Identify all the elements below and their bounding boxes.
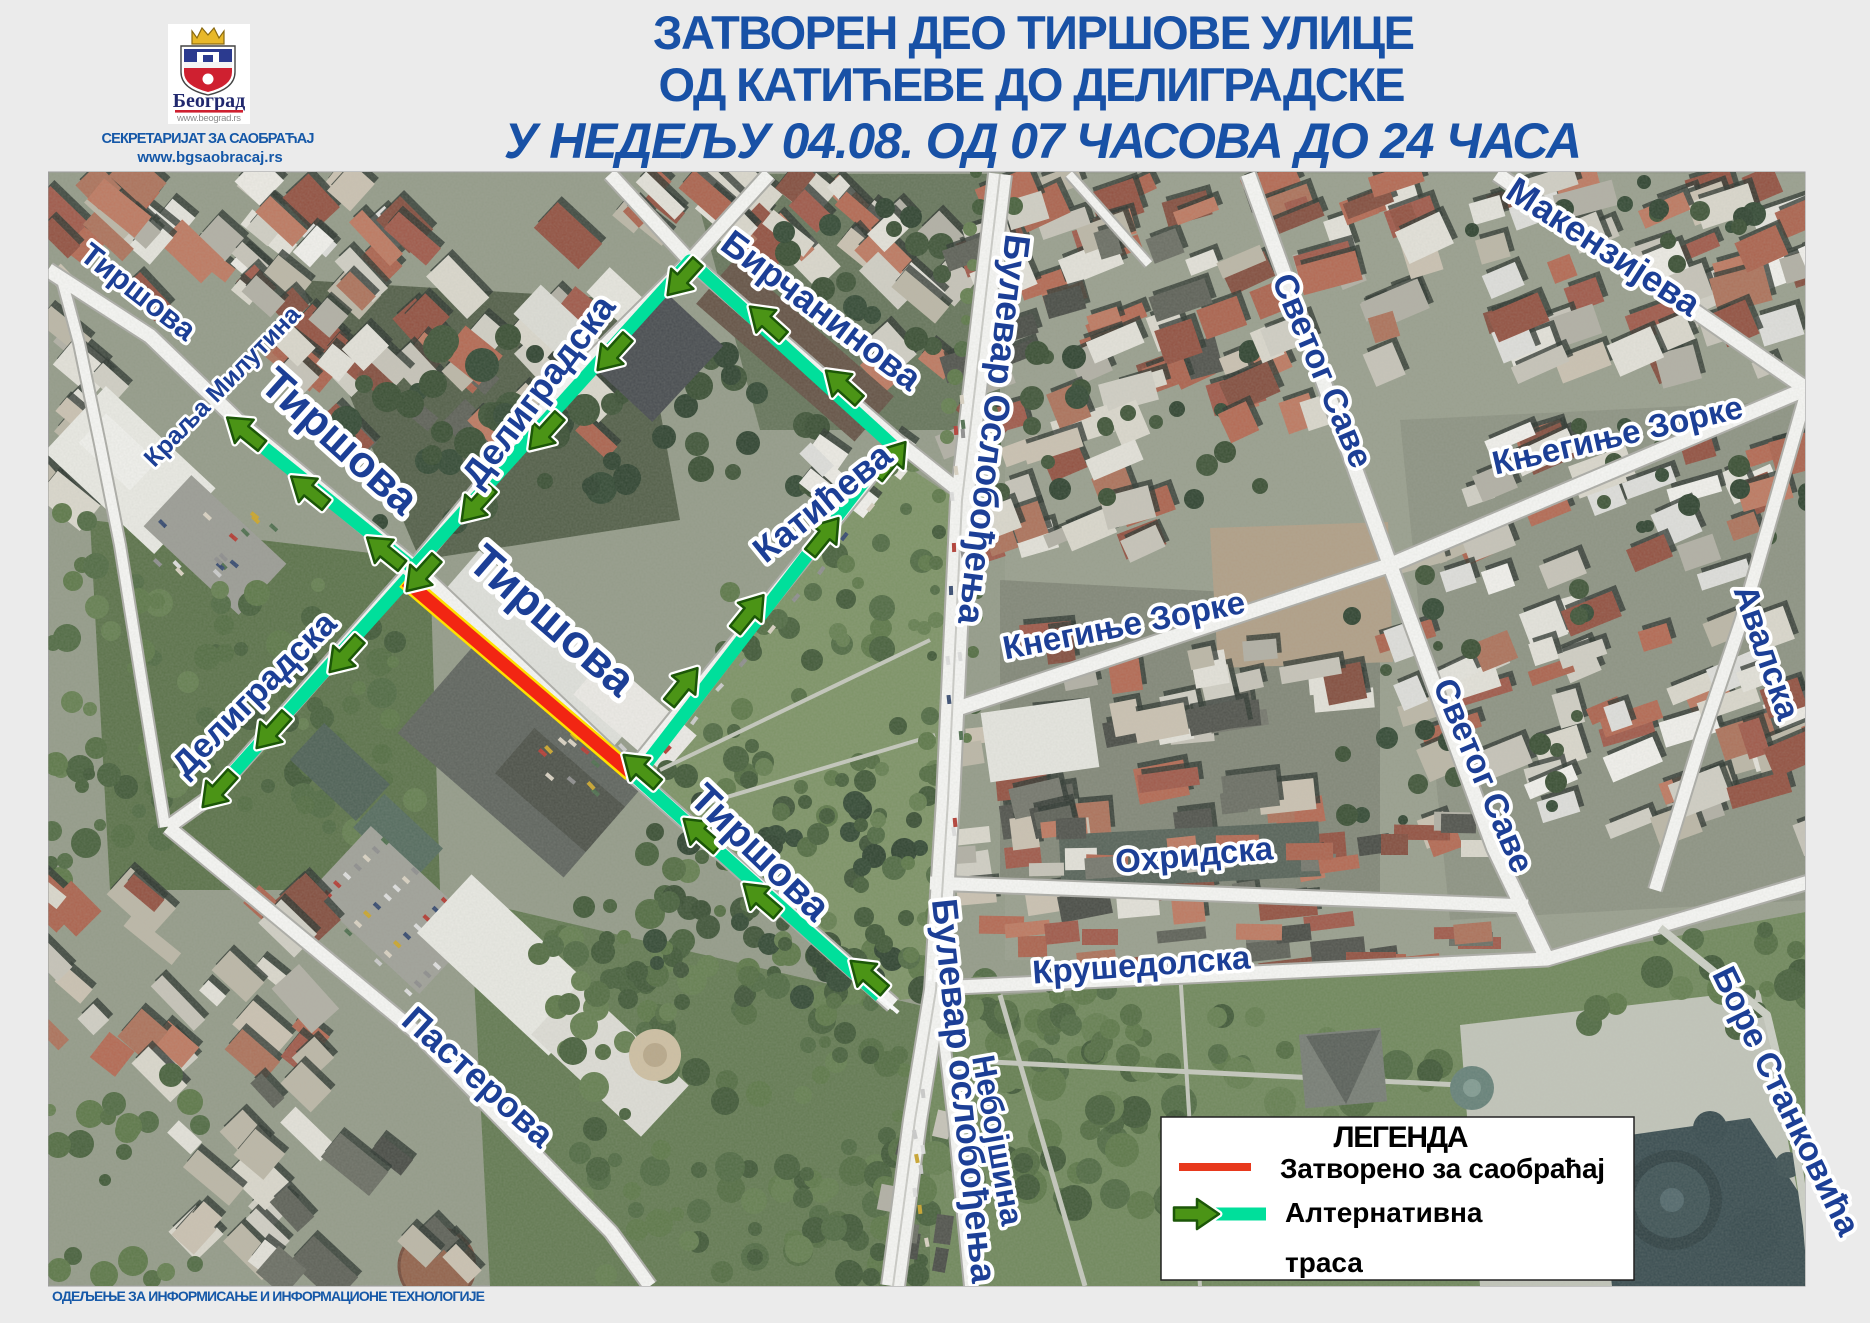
svg-text:www.beograd.rs: www.beograd.rs [176, 113, 241, 124]
svg-text:www.bgsaobracaj.rs: www.bgsaobracaj.rs [136, 149, 282, 166]
svg-text:Алтернативна: Алтернативна [1285, 1197, 1483, 1228]
svg-text:ЛЕГЕНДА: ЛЕГЕНДА [1334, 1121, 1469, 1154]
svg-text:Београд: Београд [173, 90, 245, 112]
svg-text:ОД КАТИЋЕВЕ ДО ДЕЛИГРАДСКЕ: ОД КАТИЋЕВЕ ДО ДЕЛИГРАДСКЕ [659, 58, 1406, 111]
svg-text:Затворено за саобраћај: Затворено за саобраћај [1280, 1153, 1605, 1184]
svg-text:траса: траса [1285, 1247, 1363, 1278]
svg-text:ЗАТВОРЕН ДЕО ТИРШОВЕ УЛИЦЕ: ЗАТВОРЕН ДЕО ТИРШОВЕ УЛИЦЕ [653, 6, 1415, 59]
svg-text:СЕКРЕТАРИЈАТ ЗА САОБРАЋАЈ: СЕКРЕТАРИЈАТ ЗА САОБРАЋАЈ [102, 131, 315, 147]
svg-text:У НЕДЕЉУ 04.08. ОД 07 ЧАСОВА: У НЕДЕЉУ 04.08. ОД 07 ЧАСОВА ДО 24 ЧАСА [504, 113, 1582, 169]
svg-text:ОДЕЉЕЊЕ ЗА ИНФОРМИСАЊЕ И ИНФОР: ОДЕЉЕЊЕ ЗА ИНФОРМИСАЊЕ И ИНФОРМАЦИОНЕ ТЕ… [52, 1288, 485, 1304]
